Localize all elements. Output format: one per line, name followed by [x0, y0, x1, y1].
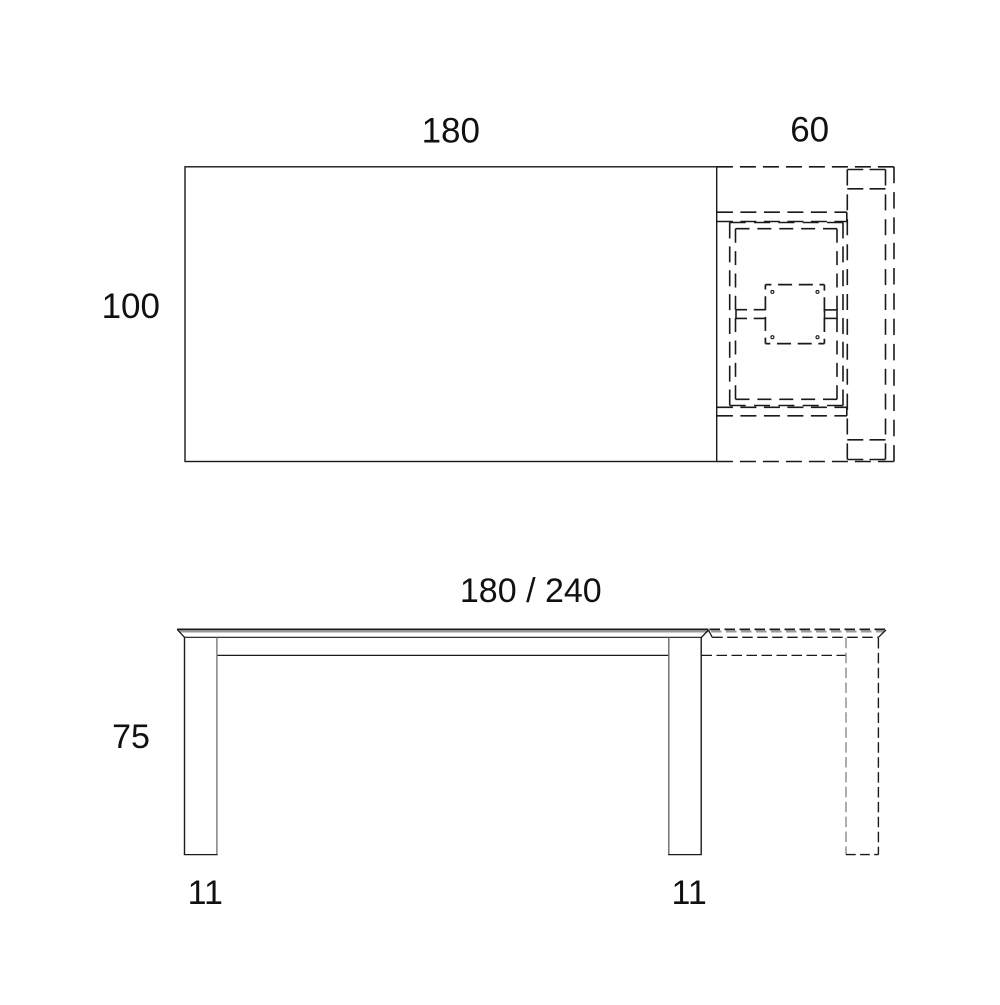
svg-text:11: 11: [672, 874, 707, 912]
svg-text:180: 180: [422, 112, 480, 151]
svg-text:11: 11: [188, 874, 223, 912]
svg-text:180 / 240: 180 / 240: [460, 572, 602, 610]
svg-text:75: 75: [112, 718, 150, 756]
svg-text:100: 100: [102, 287, 160, 326]
svg-text:60: 60: [790, 111, 829, 150]
